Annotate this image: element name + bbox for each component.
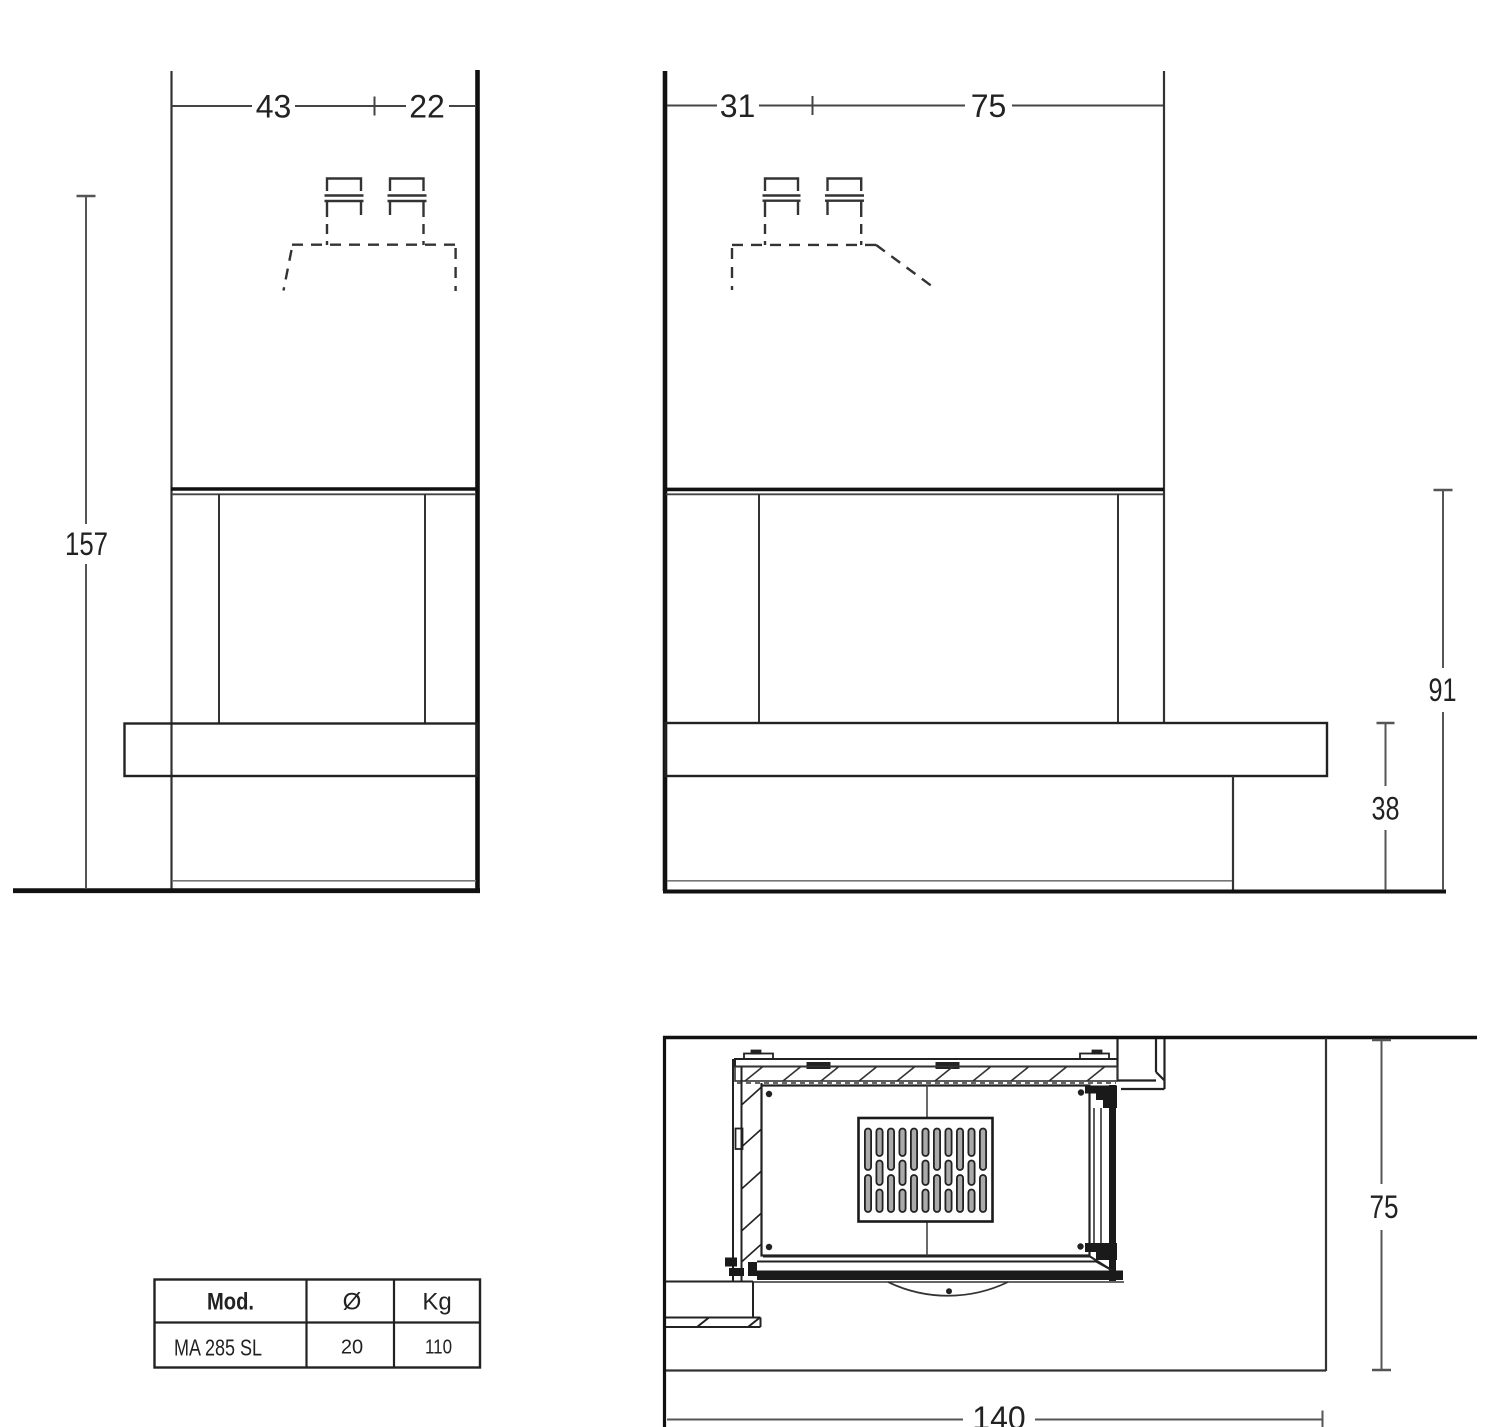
svg-text:140: 140: [972, 1400, 1025, 1427]
svg-text:Kg: Kg: [422, 1289, 451, 1316]
svg-text:MA 285 SL: MA 285 SL: [174, 1335, 262, 1361]
svg-text:110: 110: [425, 1337, 452, 1359]
svg-text:43: 43: [256, 89, 292, 125]
svg-text:31: 31: [720, 88, 756, 124]
svg-text:20: 20: [341, 1337, 363, 1359]
svg-text:Mod.: Mod.: [207, 1289, 254, 1316]
svg-text:75: 75: [1370, 1189, 1399, 1225]
svg-text:91: 91: [1429, 672, 1457, 708]
svg-text:157: 157: [65, 526, 108, 562]
svg-text:Ø: Ø: [343, 1289, 362, 1316]
svg-text:22: 22: [409, 89, 445, 125]
svg-text:38: 38: [1372, 791, 1400, 827]
svg-text:75: 75: [971, 88, 1007, 124]
